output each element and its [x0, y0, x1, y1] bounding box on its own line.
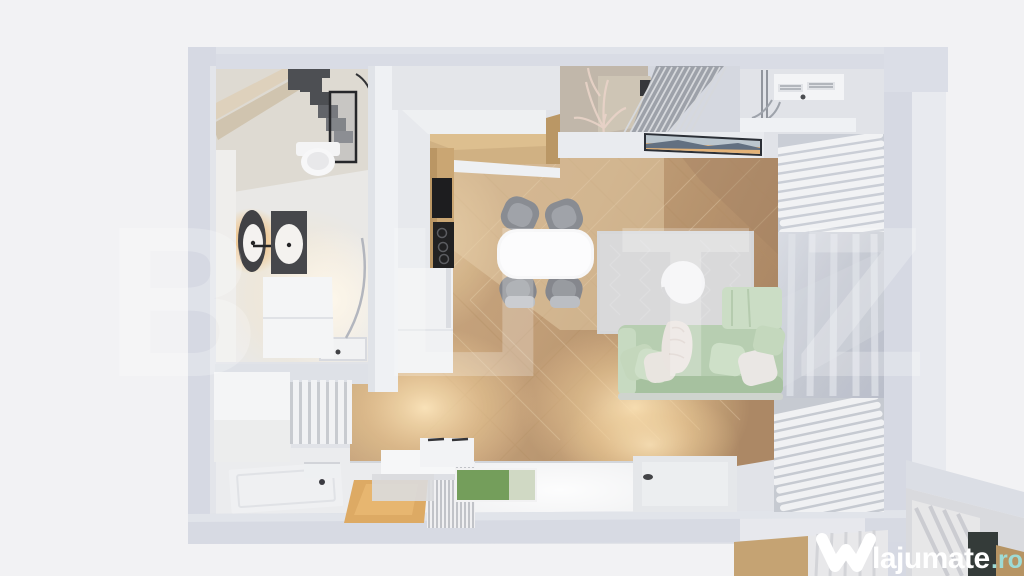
svg-text:lajumate: lajumate	[872, 542, 990, 575]
svg-text:I: I	[488, 181, 548, 422]
svg-text:.ro: .ro	[991, 546, 1023, 574]
svg-text:T: T	[620, 181, 751, 422]
svg-text:Z: Z	[795, 181, 926, 422]
svg-text:B: B	[105, 181, 260, 422]
